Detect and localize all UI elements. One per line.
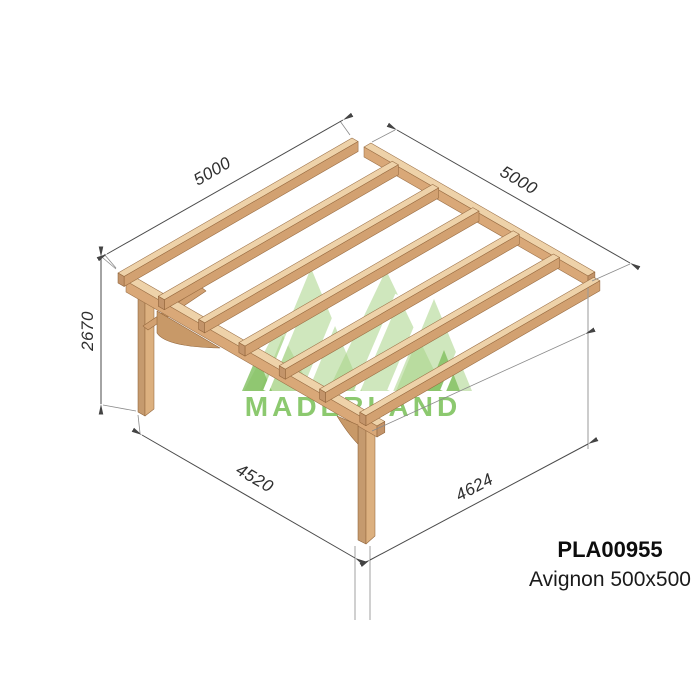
dimension-side-span: 4624 — [370, 444, 588, 620]
product-technical-drawing: MADERLAND — [0, 0, 700, 700]
dim-rafter-length-label: 5000 — [190, 153, 234, 189]
dim-side-span-label: 4624 — [452, 469, 496, 504]
pergola-isometric-diagram: MADERLAND — [0, 0, 700, 700]
product-name: Avignon 500x500 — [529, 568, 691, 591]
front-right-post — [358, 420, 375, 544]
dim-height-label: 2670 — [78, 311, 97, 352]
product-caption: PLA00955 Avignon 500x500 — [529, 537, 691, 591]
left-post — [138, 294, 154, 416]
product-code: PLA00955 — [557, 537, 662, 562]
dimension-rafter-length: 5000 — [104, 120, 350, 268]
dimension-front-span: 4520 — [138, 415, 355, 620]
dim-ledger-length-label: 5000 — [497, 162, 541, 198]
